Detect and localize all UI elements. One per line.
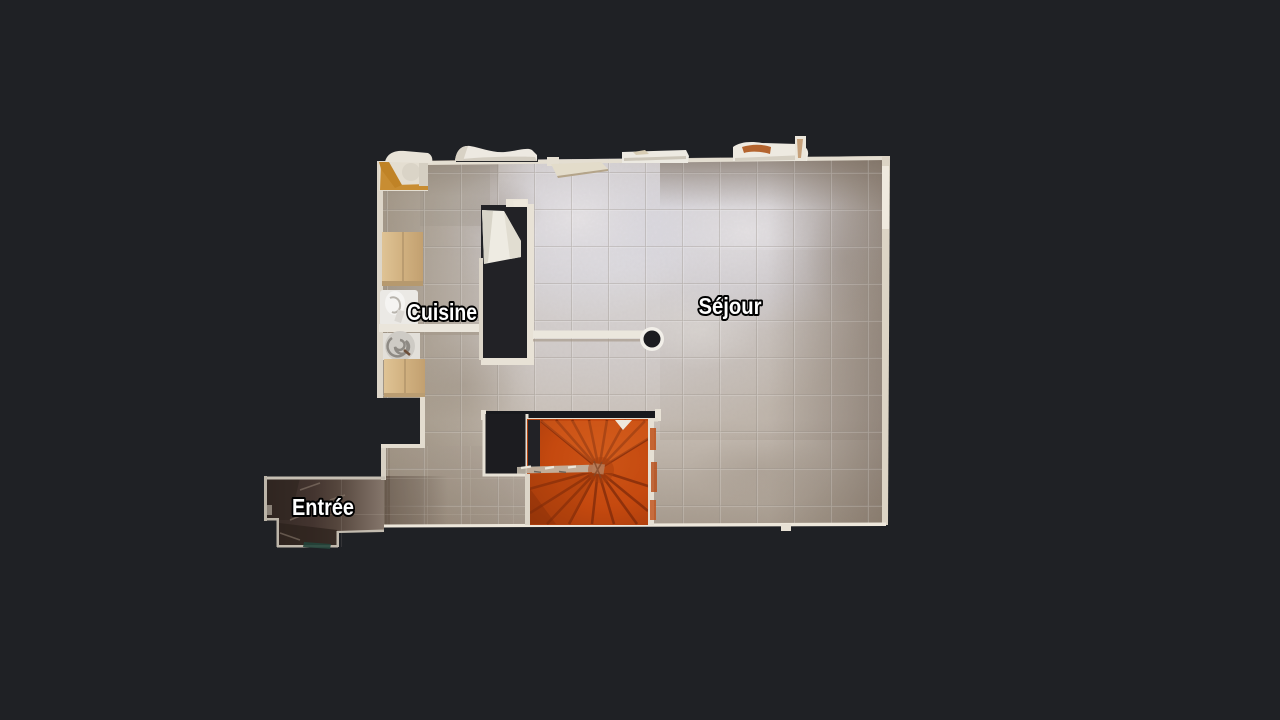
svg-text:Cuisine: Cuisine: [407, 299, 477, 325]
svg-text:Séjour: Séjour: [699, 293, 762, 319]
svg-text:Entrée: Entrée: [292, 494, 354, 520]
